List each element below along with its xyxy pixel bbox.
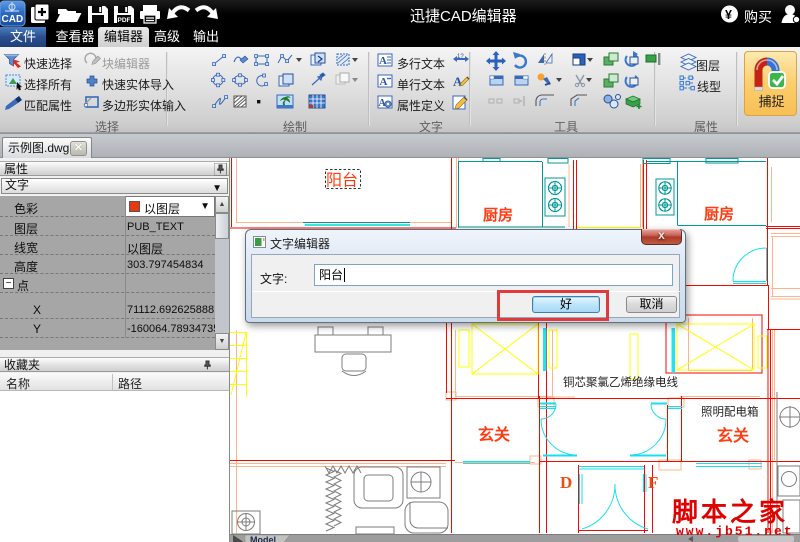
svg-text:Model: Model <box>250 535 276 542</box>
svg-text:F: F <box>648 473 658 492</box>
svg-text:1?: 1? <box>457 54 464 60</box>
svg-text:A: A <box>380 76 388 88</box>
svg-text:A: A <box>453 74 463 89</box>
svg-text:¥: ¥ <box>725 8 732 22</box>
svg-text:铜芯聚氯乙烯绝缘电线: 铜芯聚氯乙烯绝缘电线 <box>563 375 678 389</box>
svg-text:厨房: 厨房 <box>483 206 513 224</box>
svg-text:厨房: 厨房 <box>704 205 734 223</box>
svg-text:玄关: 玄关 <box>717 426 749 445</box>
svg-text:玄关: 玄关 <box>478 425 510 444</box>
svg-text:照明配电箱: 照明配电箱 <box>701 405 759 419</box>
svg-text:D: D <box>560 473 572 492</box>
svg-text:PDF: PDF <box>118 17 131 24</box>
svg-text:A: A <box>379 55 387 67</box>
svg-text:CAD: CAD <box>2 14 24 25</box>
svg-text:阳台: 阳台 <box>326 172 358 190</box>
